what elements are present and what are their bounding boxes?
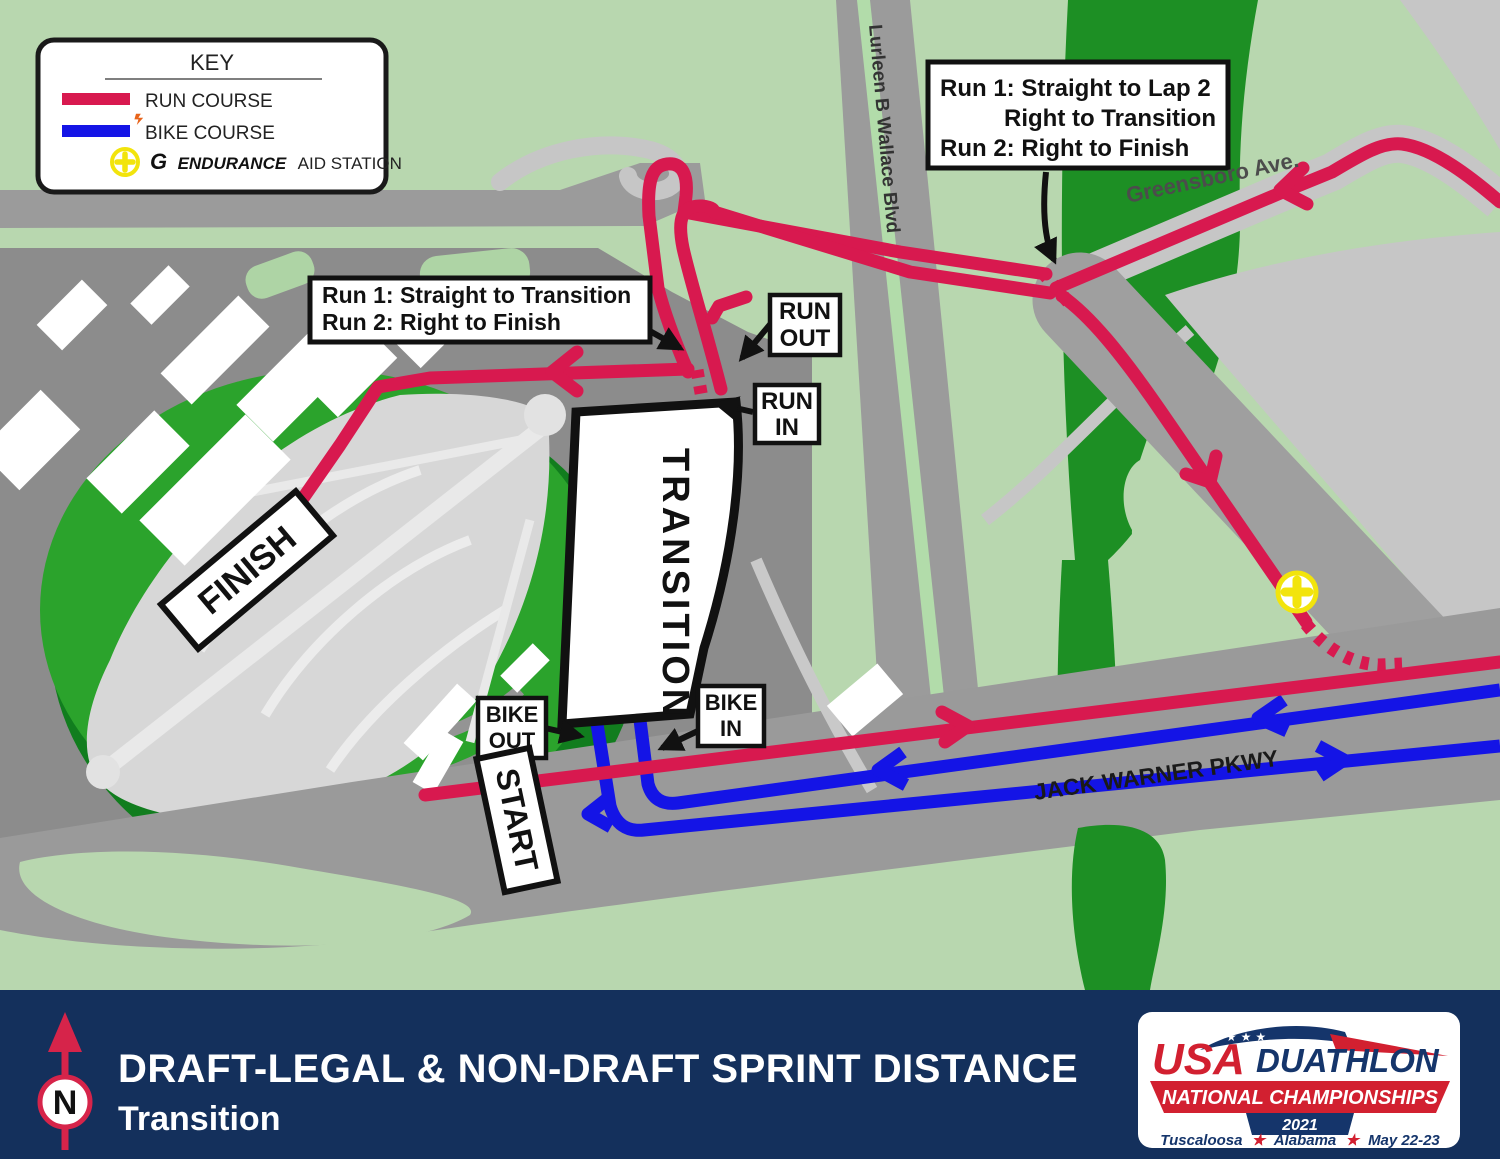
logo-city: Tuscaloosa <box>1160 1132 1242 1149</box>
callout-left-line2: Run 2: Right to Finish <box>322 309 561 335</box>
stage-knob <box>524 394 566 436</box>
run-in-label-2: IN <box>775 414 799 441</box>
callout-top-line1: Run 1: Straight to Lap 2 <box>940 75 1211 102</box>
map-subtitle: Transition <box>118 1100 280 1138</box>
bike-out-label-1: BIKE <box>486 702 539 727</box>
bike-in-label-1: BIKE <box>705 690 758 715</box>
legend-run-label: RUN COURSE <box>145 91 273 112</box>
run-out-label-2: OUT <box>780 325 831 352</box>
usa-duathlon-logo: ★★★ USA DUATHLON NATIONAL CHAMPIONSHIPS … <box>1138 1012 1460 1149</box>
aid-station-icon <box>1278 573 1316 611</box>
star-icon: ★ <box>1252 1132 1268 1149</box>
course-map-page: TRANSITION Run 1: Straight to Lap 2 Righ… <box>0 0 1500 1159</box>
map-title: DRAFT-LEGAL & NON-DRAFT SPRINT DISTANCE <box>118 1047 1078 1091</box>
logo-banner-text: NATIONAL CHAMPIONSHIPS <box>1162 1087 1439 1109</box>
star-icon: ★ <box>1345 1132 1361 1149</box>
run-out-label-1: RUN <box>779 298 831 325</box>
logo-usa: USA <box>1152 1035 1245 1084</box>
svg-text:Tuscaloosa ★ Alaba: Tuscaloosa ★ Alabama ★ May 22-23 <box>1160 1132 1440 1149</box>
park-blob-bottom <box>1072 825 1166 990</box>
callout-left-line1: Run 1: Straight to Transition <box>322 282 631 308</box>
logo-dates: May 22-23 <box>1368 1132 1440 1149</box>
north-letter: N <box>53 1084 78 1122</box>
callout-top-line3: Run 2: Right to Finish <box>940 135 1189 162</box>
run-in-label-1: RUN <box>761 388 813 415</box>
gatorade-g-mark: G <box>150 149 167 174</box>
transition-label: TRANSITION <box>654 448 696 720</box>
run-course-swatch <box>62 93 130 105</box>
path-knob <box>86 755 120 789</box>
logo-duathlon: DUATHLON <box>1256 1042 1440 1079</box>
aid-station-label: AID STATION <box>298 154 402 173</box>
endurance-wordmark: ENDURANCE <box>178 154 287 173</box>
logo-state: Alabama <box>1273 1132 1337 1149</box>
bike-in-label-2: IN <box>720 716 742 741</box>
legend-bike-label: BIKE COURSE <box>145 123 275 144</box>
bike-course-swatch <box>62 125 130 137</box>
callout-top-line2: Right to Transition <box>1004 105 1216 132</box>
legend: KEY RUN COURSE BIKE COURSE G ENDURANCE A… <box>38 40 402 192</box>
map-canvas: TRANSITION Run 1: Straight to Lap 2 Righ… <box>0 0 1500 1159</box>
legend-title: KEY <box>190 50 234 75</box>
